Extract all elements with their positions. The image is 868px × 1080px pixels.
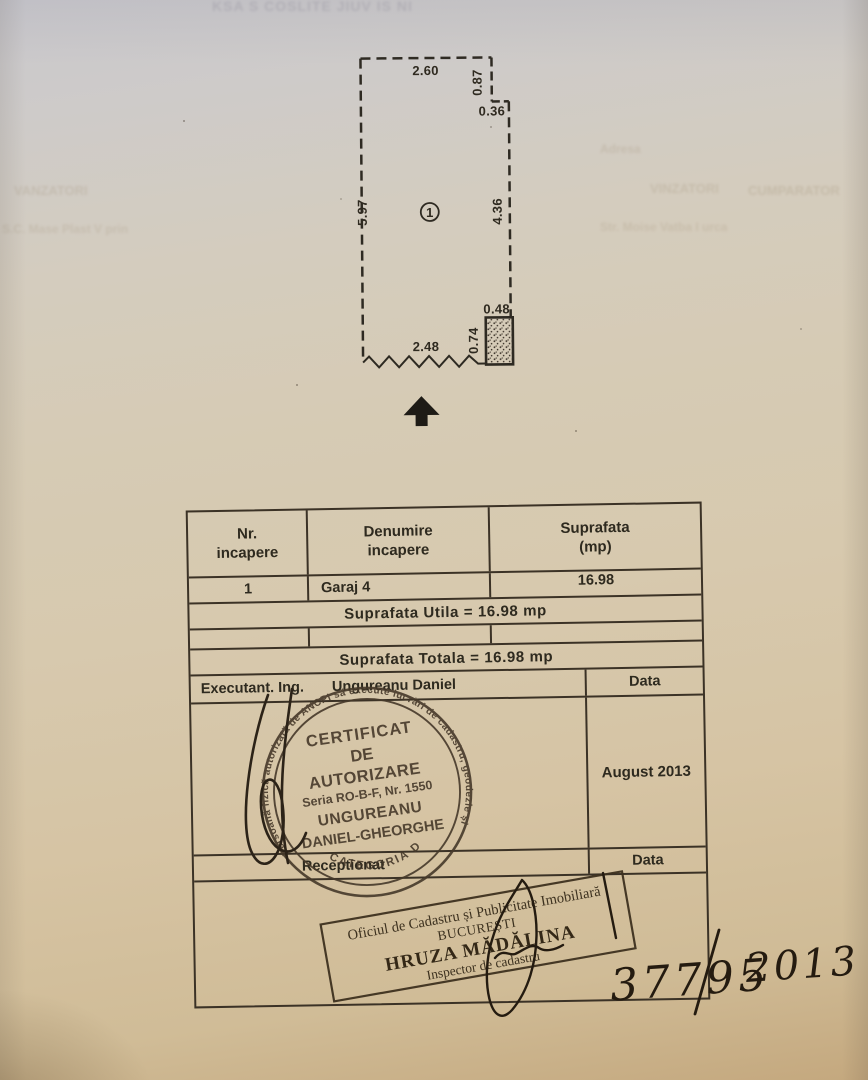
spacer-cell (492, 622, 702, 644)
spacer-cell (190, 628, 310, 648)
data-label-cell: Data (587, 668, 703, 696)
bleedthrough-right-line2: CUMPARATOR (748, 183, 840, 198)
header-nr-line1: Nr. (237, 525, 257, 542)
bleedthrough-right-line3: Str. Moise Vatba I urca (600, 220, 727, 234)
north-arrow-icon (403, 396, 439, 426)
handwritten-year: 2013 (743, 938, 861, 992)
header-denumire-line2: incapere (367, 541, 429, 559)
bleedthrough-left-line1: VANZATORI (14, 183, 88, 198)
bleedthrough-left-line2: S.C. Mase Plast V prin (2, 222, 128, 236)
bleedthrough-top-text: KSA S COSLITE JIUV IS NI (212, 0, 413, 14)
cell-denumire: Garaj 4 (309, 573, 491, 600)
dim-pillar-width-label: 0.48 (483, 301, 510, 316)
floor-plan-sketch: 1 2.60 0.87 0.36 4.36 5.97 2.48 0.74 0.4… (328, 39, 531, 433)
executant-date-cell: August 2013 (587, 696, 706, 848)
dim-right-lower-label: 4.36 (490, 198, 505, 225)
cell-nr: 1 (189, 576, 309, 602)
header-nr-incapere: Nr. incapere (188, 510, 309, 576)
scan-speck (575, 430, 577, 432)
table-header-row: Nr. incapere Denumire incapere Suprafata… (188, 504, 701, 579)
header-nr-line2: incapere (216, 544, 278, 562)
cell-suprafata: 16.98 (491, 570, 701, 598)
header-suprafata-line2: (mp) (579, 538, 612, 556)
stamp-line-de: DE (349, 745, 374, 766)
signature-stroke (246, 695, 306, 864)
header-suprafata: Suprafata (mp) (490, 504, 701, 572)
dim-step-label: 0.36 (479, 103, 506, 118)
signature-stroke (282, 689, 292, 863)
dim-left-label: 5.97 (355, 199, 370, 226)
scan-speck (183, 120, 185, 122)
scanned-document-page: KSA S COSLITE JIUV IS NI Adresa VANZATOR… (0, 0, 868, 1080)
header-denumire-incapere: Denumire incapere (308, 507, 491, 574)
wall-bottom-zigzag (363, 356, 486, 368)
bleedthrough-right-line1: VINZATORI (650, 181, 719, 196)
dim-top-label: 2.60 (412, 63, 439, 78)
wall-right-lower (509, 101, 511, 317)
dim-bottom-label: 2.48 (413, 339, 440, 354)
pillar-hatched (486, 317, 513, 364)
dim-right-upper-label: 0.87 (470, 69, 485, 96)
header-suprafata-line1: Suprafata (560, 518, 629, 536)
bleedthrough-adresa-text: Adresa (600, 142, 641, 156)
spacer-cell (310, 625, 492, 646)
scan-speck (800, 328, 802, 330)
scan-speck (296, 384, 298, 386)
handwritten-registration: 37795 2013 (598, 918, 868, 1033)
dim-pillar-height-label: 0.74 (466, 327, 481, 354)
wall-top (360, 57, 491, 58)
room-number-label: 1 (426, 205, 434, 220)
header-denumire-line1: Denumire (363, 522, 432, 540)
